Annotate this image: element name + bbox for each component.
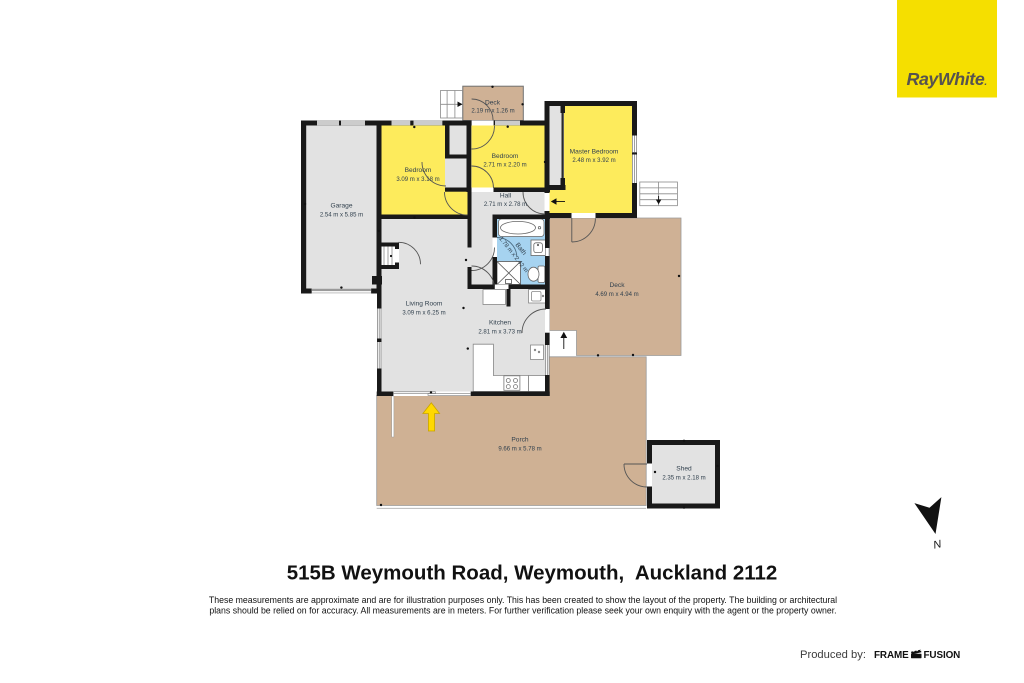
- svg-text:2.71 m x 2.78 m: 2.71 m x 2.78 m: [484, 202, 527, 208]
- svg-text:Bedroom: Bedroom: [492, 153, 519, 160]
- svg-text:2.81 m x 3.73 m: 2.81 m x 3.73 m: [478, 330, 521, 336]
- svg-text:4.69 m x 4.94 m: 4.69 m x 4.94 m: [595, 292, 638, 298]
- svg-text:Deck: Deck: [609, 282, 625, 289]
- svg-text:Deck: Deck: [485, 99, 501, 106]
- svg-text:FUSION: FUSION: [924, 650, 961, 661]
- svg-text:Master Bedroom: Master Bedroom: [570, 149, 619, 156]
- svg-text:RayWhite.: RayWhite.: [907, 69, 987, 89]
- svg-text:Living Room: Living Room: [406, 301, 443, 308]
- svg-text:9.66 m x 5.78 m: 9.66 m x 5.78 m: [498, 447, 541, 453]
- svg-text:2.54 m x 5.85 m: 2.54 m x 5.85 m: [320, 212, 363, 218]
- svg-text:Porch: Porch: [511, 437, 529, 444]
- svg-text:Kitchen: Kitchen: [489, 320, 511, 327]
- svg-text:These measurements are approxi: These measurements are approximate and a…: [209, 595, 837, 605]
- svg-text:plans should be relied on for: plans should be relied on for accuracy. …: [209, 606, 836, 616]
- svg-text:Shed: Shed: [676, 466, 692, 473]
- svg-text:FRAME: FRAME: [874, 650, 909, 661]
- svg-text:Produced by:: Produced by:: [800, 649, 866, 661]
- svg-text:2.48 m x 3.92 m: 2.48 m x 3.92 m: [572, 158, 615, 164]
- svg-text:Hall: Hall: [500, 193, 512, 200]
- svg-text:Garage: Garage: [331, 203, 353, 210]
- svg-text:515B Weymouth Road, Weymouth,: 515B Weymouth Road, Weymouth, Auckland 2…: [287, 562, 778, 585]
- svg-text:2.71 m x 2.20 m: 2.71 m x 2.20 m: [483, 163, 526, 169]
- svg-text:3.09 m x 6.25 m: 3.09 m x 6.25 m: [402, 311, 445, 317]
- svg-text:3.09 m x 3.18 m: 3.09 m x 3.18 m: [396, 177, 439, 183]
- svg-text:Bedroom: Bedroom: [405, 167, 432, 174]
- svg-text:2.35 m x 2.18 m: 2.35 m x 2.18 m: [662, 476, 705, 482]
- svg-text:2.19 m x 1.26 m: 2.19 m x 1.26 m: [471, 108, 514, 114]
